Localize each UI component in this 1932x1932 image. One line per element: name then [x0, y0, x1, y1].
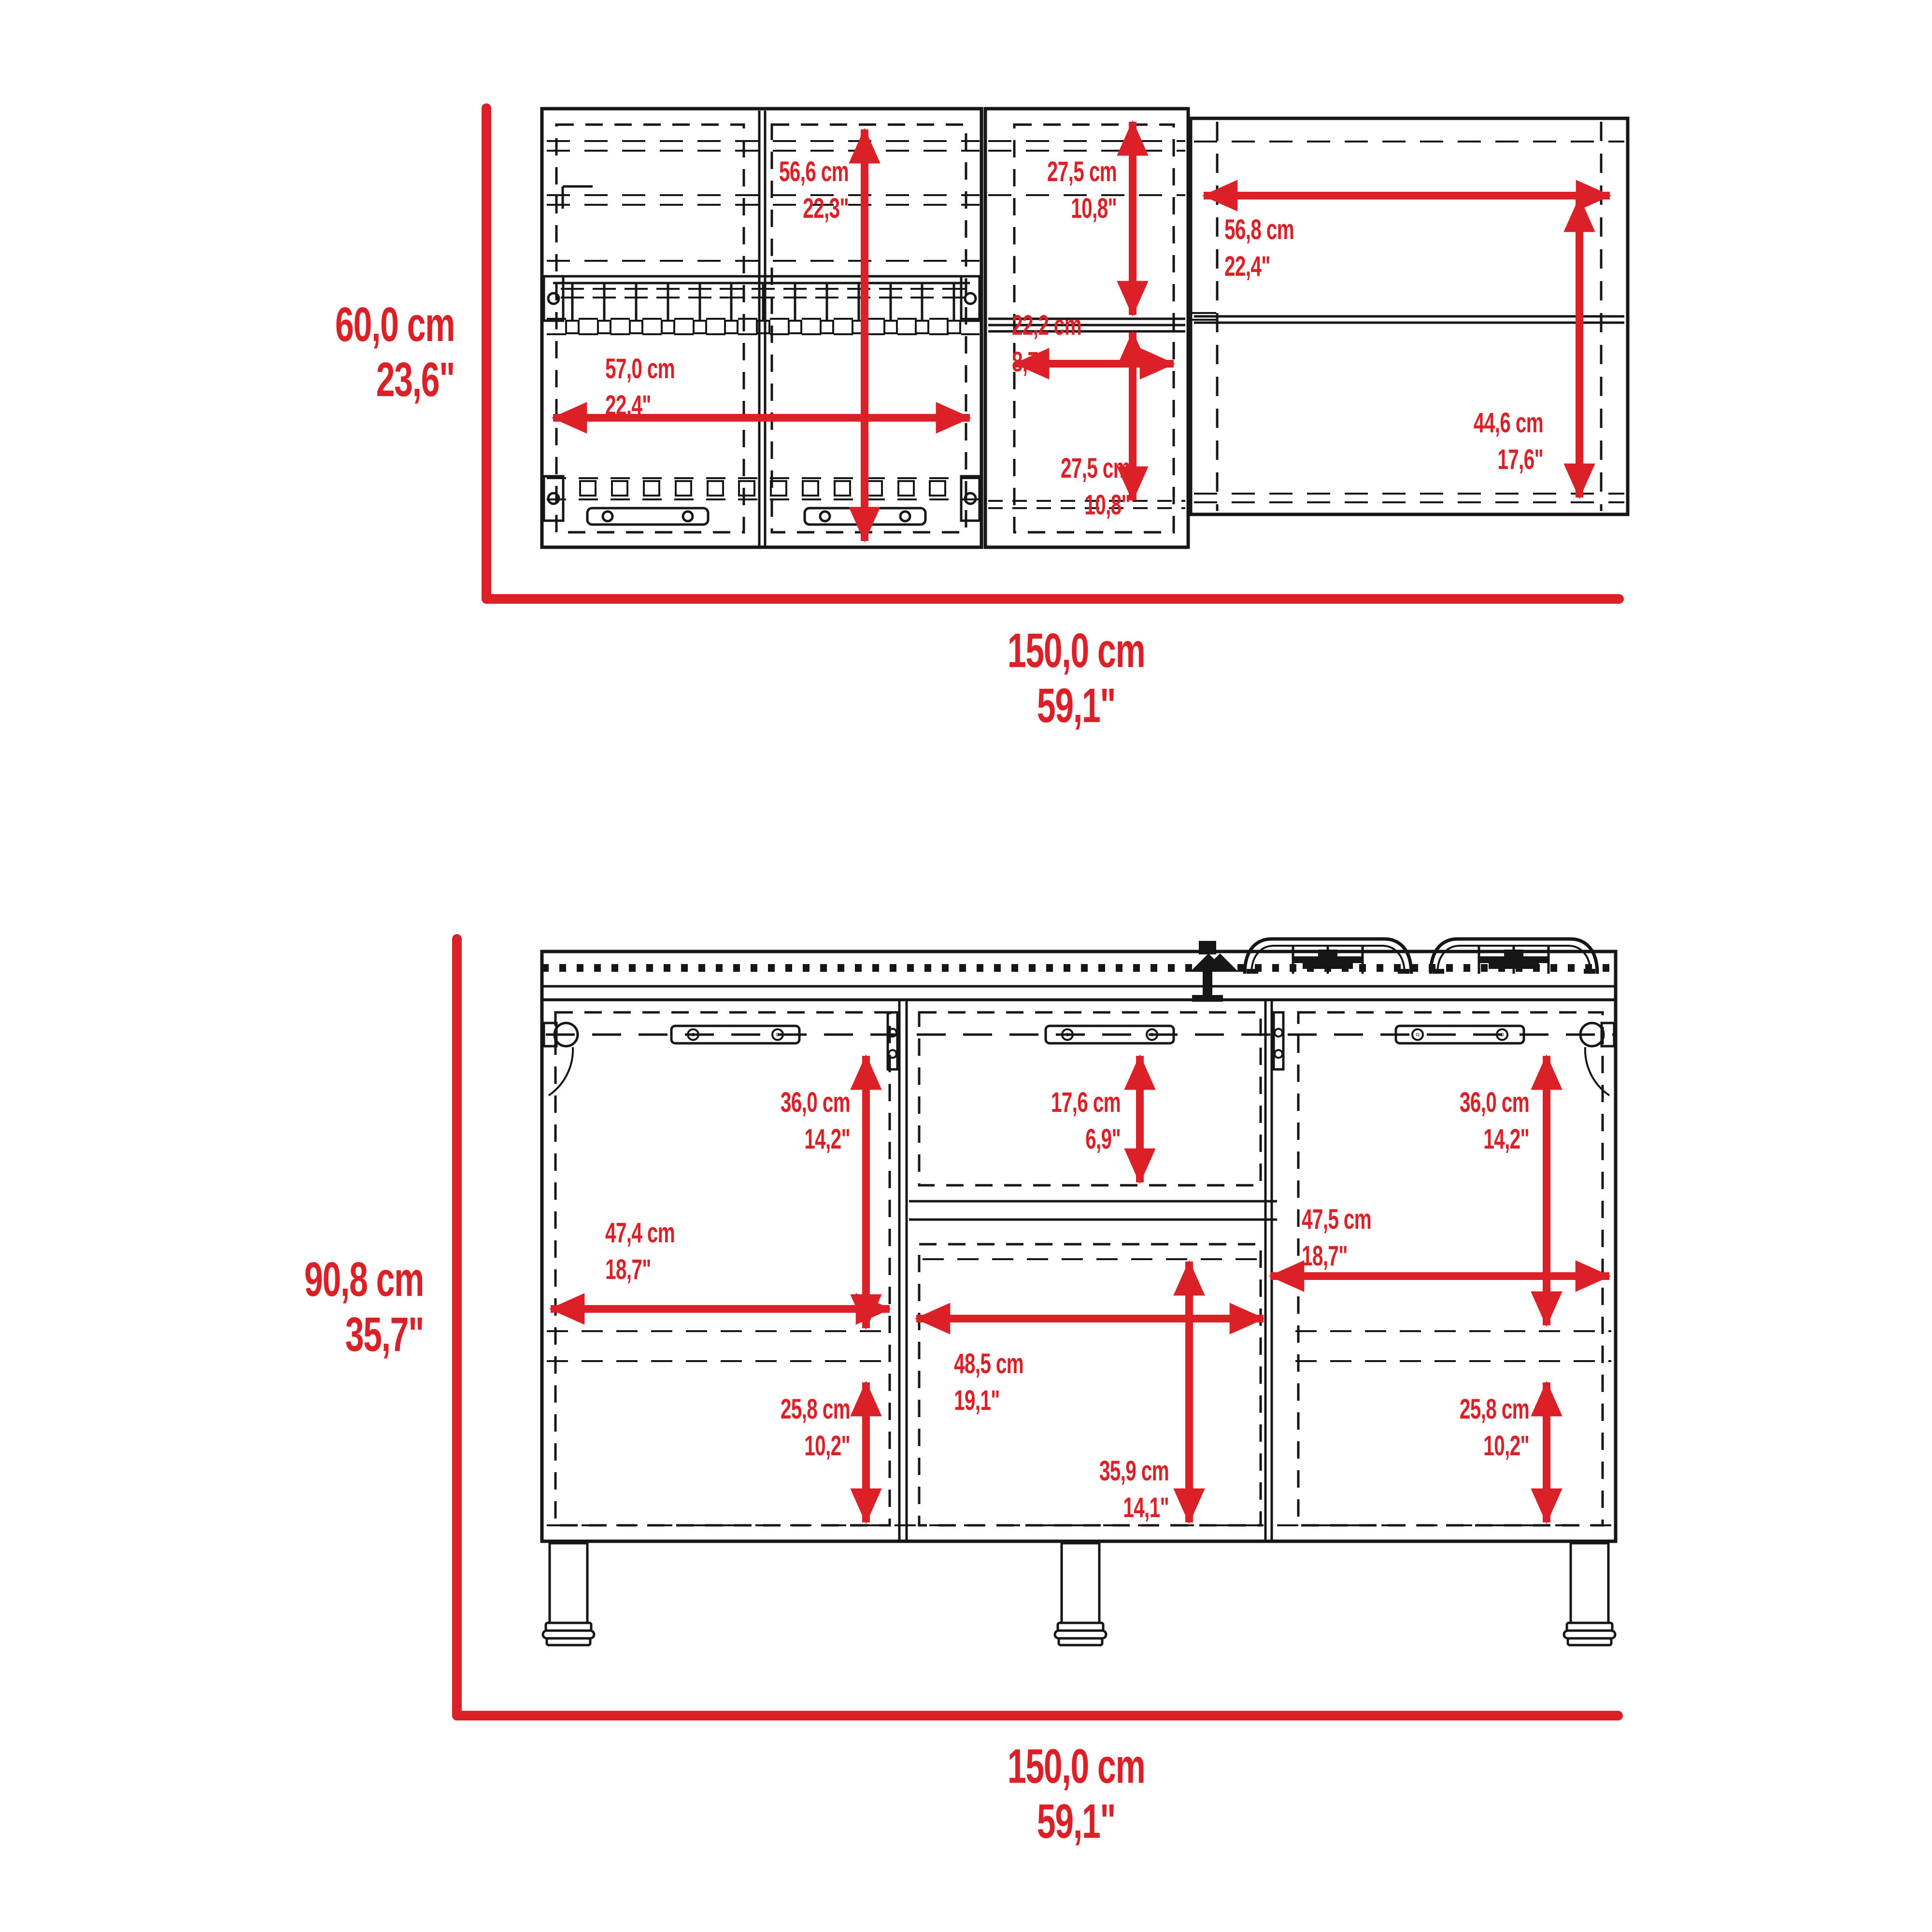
dim-value-cm: 27,5 cm: [880, 154, 1117, 190]
dim-label-wall-right-height: 44,6 cm 17,6": [1307, 405, 1543, 478]
plate-rack: [547, 276, 980, 334]
dim-value-cm: 27,5 cm: [894, 450, 1130, 487]
dim-value-in: 18,7": [1302, 1238, 1538, 1275]
dim-value-cm: 36,0 cm: [613, 1084, 850, 1121]
dim-label-base-middle-width: 48,5 cm 19,1": [954, 1346, 1191, 1419]
dim-value-cm: 150,0 cm: [958, 623, 1194, 678]
dim-value-in: 14,2": [1293, 1121, 1529, 1158]
dim-label-base-overall-width: 150,0 cm 59,1": [958, 1739, 1194, 1849]
dim-value-in: 10,8": [880, 190, 1117, 227]
dim-label-wall-middle-bottom: 27,5 cm 10,8": [894, 450, 1130, 524]
leg-left: [543, 1543, 594, 1645]
dim-label-base-right-width: 47,5 cm 18,7": [1302, 1201, 1538, 1275]
dim-value-in: 23,6": [218, 352, 455, 407]
dim-label-base-left-lower: 25,8 cm 10,2": [613, 1391, 850, 1464]
dim-value-in: 22,3": [612, 190, 849, 227]
dim-value-in: 10,2": [613, 1428, 850, 1464]
dim-value-in: 35,7": [187, 1307, 424, 1362]
mounting-rail: [1396, 1026, 1524, 1043]
dim-value-in: 22,4": [605, 387, 842, 424]
dim-value-cm: 60,0 cm: [218, 297, 455, 352]
base-dimension-lines: [457, 939, 1618, 1716]
dim-value-in: 6,9": [884, 1121, 1121, 1158]
dim-value-cm: 56,6 cm: [612, 154, 849, 190]
dim-value-in: 10,2": [1293, 1428, 1529, 1464]
dim-label-base-drawer: 17,6 cm 6,9": [884, 1084, 1121, 1158]
dim-value-in: 8,7": [1012, 344, 1249, 381]
dim-value-in: 59,1": [958, 1794, 1194, 1849]
dim-value-cm: 47,4 cm: [605, 1215, 842, 1251]
dim-value-in: 10,8": [894, 487, 1130, 524]
dim-value-cm: 90,8 cm: [187, 1252, 424, 1307]
dim-value-in: 14,1": [932, 1490, 1169, 1526]
dim-value-cm: 17,6 cm: [884, 1084, 1121, 1121]
dim-label-wall-overall-height: 60,0 cm 23,6": [218, 297, 455, 407]
dim-label-wall-left-width: 57,0 cm 22,4": [605, 351, 842, 424]
dim-value-cm: 57,0 cm: [605, 351, 842, 387]
dim-label-base-overall-height: 90,8 cm 35,7": [187, 1252, 424, 1362]
dim-label-wall-middle-top: 27,5 cm 10,8": [880, 154, 1117, 227]
dim-value-cm: 150,0 cm: [958, 1739, 1194, 1794]
dim-value-cm: 47,5 cm: [1302, 1201, 1538, 1238]
leg-right: [1564, 1543, 1615, 1645]
door-handle: [587, 508, 925, 525]
dim-value-in: 22,4": [1224, 248, 1461, 285]
dim-value-cm: 35,9 cm: [932, 1453, 1169, 1490]
divider-bracket: [1274, 1012, 1283, 1069]
dim-value-in: 14,2": [613, 1121, 850, 1158]
dim-value-cm: 25,8 cm: [613, 1391, 850, 1428]
dim-label-base-left-width: 47,4 cm 18,7": [605, 1215, 842, 1288]
dim-value-in: 59,1": [958, 678, 1194, 733]
dim-value-cm: 22,2 cm: [1012, 307, 1249, 344]
dim-value-cm: 36,0 cm: [1293, 1084, 1529, 1121]
dim-value-in: 18,7": [605, 1251, 842, 1288]
dim-value-cm: 44,6 cm: [1307, 405, 1543, 441]
dim-value-cm: 48,5 cm: [954, 1346, 1191, 1382]
dim-value-in: 17,6": [1307, 441, 1543, 478]
dim-label-base-left-upper: 36,0 cm 14,2": [613, 1084, 850, 1158]
dim-label-wall-left-height: 56,6 cm 22,3": [612, 154, 849, 227]
dim-label-wall-overall-width: 150,0 cm 59,1": [958, 623, 1194, 733]
base-cabinet-body: [542, 952, 1616, 1645]
dim-label-base-middle-lower: 35,9 cm 14,1": [932, 1453, 1169, 1526]
dim-label-wall-middle-width: 22,2 cm 8,7": [1012, 307, 1249, 381]
dim-value-cm: 56,8 cm: [1224, 212, 1461, 248]
dim-label-base-right-upper: 36,0 cm 14,2": [1293, 1084, 1529, 1158]
dim-value-in: 19,1": [954, 1382, 1191, 1419]
leg-middle: [1055, 1543, 1106, 1645]
dimension-sheet: 60,0 cm 23,6" 150,0 cm 59,1" 56,6 cm 22,…: [0, 0, 1932, 1932]
dim-label-wall-right-width: 56,8 cm 22,4": [1224, 212, 1461, 285]
dim-label-base-right-lower: 25,8 cm 10,2": [1293, 1391, 1529, 1464]
dim-value-cm: 25,8 cm: [1293, 1391, 1529, 1428]
